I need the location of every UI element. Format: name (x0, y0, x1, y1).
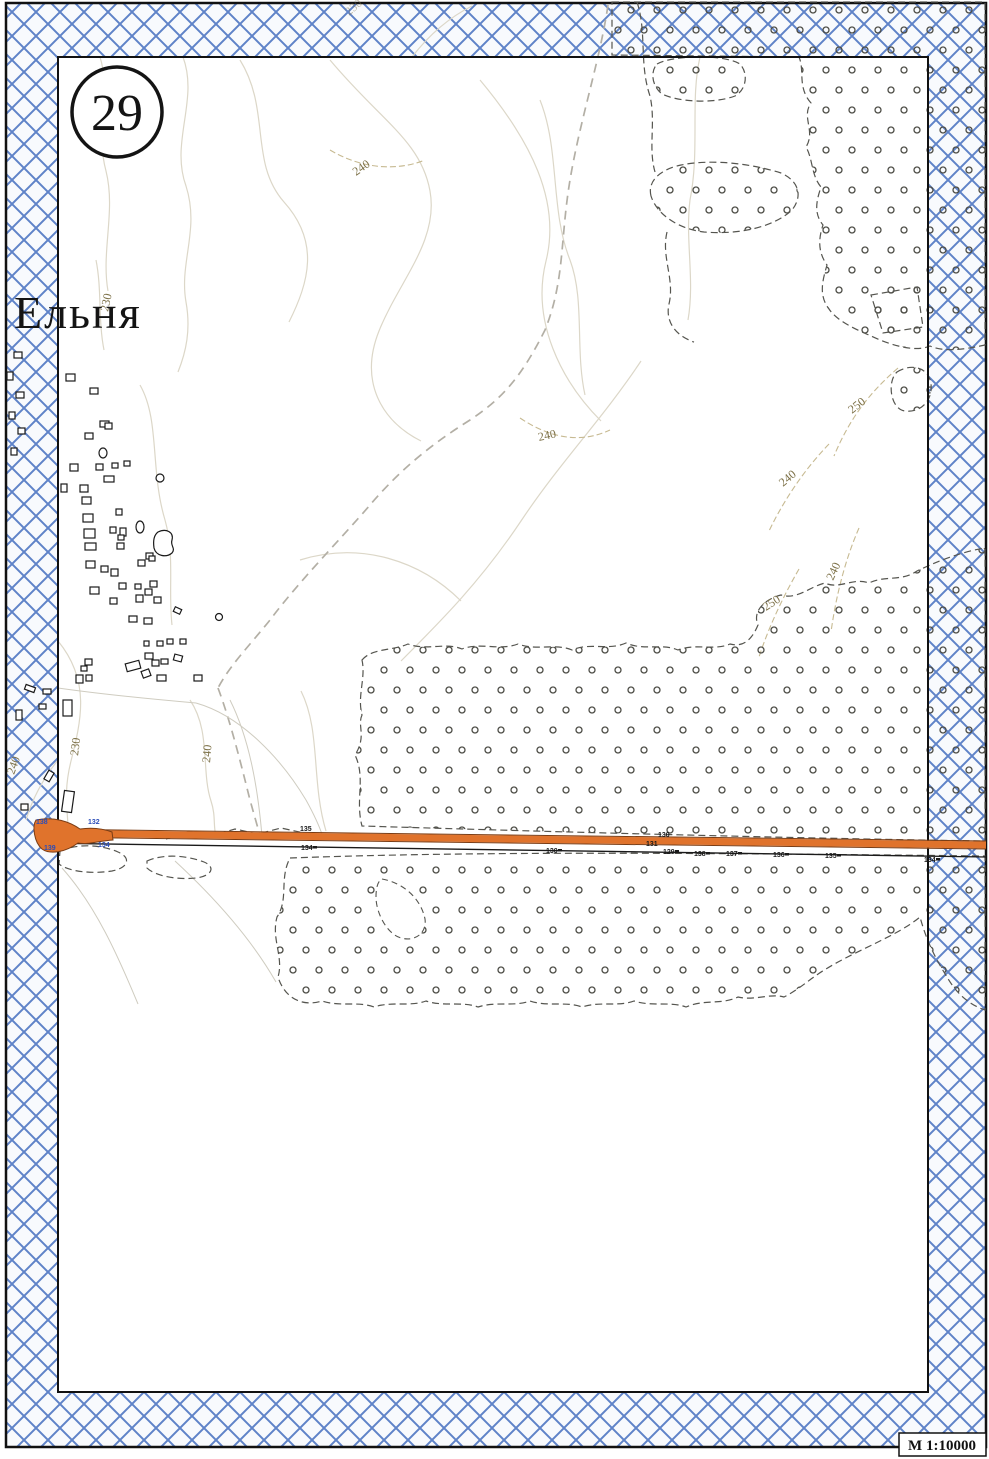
building (180, 639, 186, 644)
town-title: Ельня (14, 287, 142, 338)
building (119, 583, 126, 589)
building (16, 392, 24, 398)
building (18, 428, 25, 434)
building (96, 464, 103, 470)
km-tick (738, 852, 742, 855)
km-tick (558, 849, 562, 852)
km-tick (706, 852, 710, 855)
scale-box: М 1:10000 (899, 1433, 986, 1456)
building (173, 654, 182, 662)
building (161, 659, 168, 664)
km-tick (837, 854, 841, 857)
building (63, 700, 72, 716)
building (11, 448, 17, 455)
km-label-blue: 139 (44, 845, 56, 852)
km-label: 131 (646, 841, 658, 848)
building (43, 689, 51, 694)
building (157, 675, 166, 681)
topographic-map: 2302402302402502402402502302402401381321… (0, 0, 989, 1459)
map-sheet: 2302402302402502402402502302402401381321… (0, 0, 989, 1459)
km-label: 135 (825, 853, 837, 860)
building (117, 543, 124, 549)
building (156, 474, 164, 482)
building (86, 675, 92, 681)
building (14, 352, 22, 358)
building (152, 660, 159, 666)
building (16, 710, 22, 720)
building (118, 535, 124, 540)
building (99, 448, 107, 458)
building (216, 614, 223, 621)
building (70, 464, 78, 471)
building (167, 639, 173, 644)
building (76, 675, 83, 683)
building (145, 653, 153, 659)
building (112, 463, 118, 468)
building (9, 412, 15, 419)
vegetation-area (653, 57, 745, 101)
sheet-number: 29 (91, 85, 143, 142)
building (101, 566, 108, 572)
km-label: 134 (301, 845, 313, 852)
building (82, 497, 91, 504)
building (136, 595, 143, 602)
building (124, 461, 130, 466)
building (90, 388, 98, 394)
km-label-blue: 132 (88, 819, 100, 826)
building (86, 561, 95, 568)
scale-label: М 1:10000 (908, 1438, 976, 1454)
building (105, 423, 112, 429)
building (80, 485, 88, 492)
building (154, 530, 174, 555)
building (110, 527, 116, 533)
km-tick (936, 858, 940, 861)
building (149, 556, 155, 561)
building (39, 704, 46, 709)
elevation-label: 240 (199, 744, 215, 763)
km-tick (785, 853, 789, 856)
km-label-blue: 134 (98, 842, 110, 849)
km-tick (313, 846, 317, 849)
building (194, 675, 202, 681)
building (90, 587, 99, 594)
km-tick (675, 850, 679, 853)
building (150, 581, 157, 587)
building (111, 569, 118, 576)
km-label: 134 (924, 857, 936, 864)
building (85, 543, 96, 550)
building (135, 584, 141, 589)
building (61, 484, 67, 492)
km-label: 129 (663, 849, 675, 856)
building (129, 616, 137, 622)
building (66, 374, 75, 381)
building (85, 659, 92, 665)
elevation-label: 230 (67, 737, 83, 757)
building (62, 790, 75, 812)
km-label: 130 (658, 832, 670, 839)
building (21, 804, 28, 810)
building (7, 372, 13, 380)
building (110, 598, 117, 604)
building (144, 618, 152, 624)
building (138, 560, 145, 566)
building (116, 509, 122, 515)
building (85, 433, 93, 439)
km-label: 136 (773, 852, 785, 859)
building (136, 521, 144, 533)
km-label-blue: 138 (36, 819, 48, 826)
building (104, 476, 114, 482)
km-label: 130 (546, 848, 558, 855)
building (84, 529, 95, 538)
km-label: 135 (300, 826, 312, 833)
building (157, 641, 163, 646)
building (83, 514, 93, 522)
building (144, 641, 149, 646)
building (145, 589, 152, 595)
km-label: 137 (726, 851, 738, 858)
km-label: 138 (694, 851, 706, 858)
building (154, 597, 161, 603)
building (81, 666, 87, 671)
